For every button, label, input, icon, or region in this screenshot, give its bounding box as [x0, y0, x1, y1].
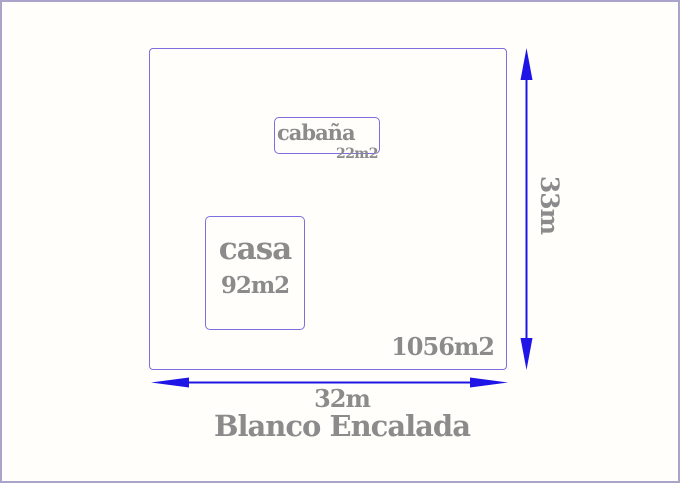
lot-height-label: 33m — [534, 173, 562, 237]
casa-outline-rect: casa 92m2 — [205, 216, 305, 330]
plan-title: Blanco Encalada — [2, 412, 680, 441]
cabana-area-label: 22m2 — [336, 147, 378, 161]
height-dimension-arrow-icon — [521, 48, 533, 370]
cabana-label: cabaña — [277, 122, 355, 143]
lot-width-label: 32m — [2, 387, 680, 411]
casa-area-label: 92m2 — [221, 274, 289, 297]
casa-label: casa — [219, 234, 292, 265]
lot-boundary-rect — [149, 48, 507, 370]
lot-area-label: 1056m2 — [354, 335, 494, 359]
site-plan-canvas: cabaña 22m2 casa 92m2 1056m2 33m 32m Bla… — [0, 0, 680, 483]
cabana-outline-rect: cabaña 22m2 — [274, 117, 380, 154]
